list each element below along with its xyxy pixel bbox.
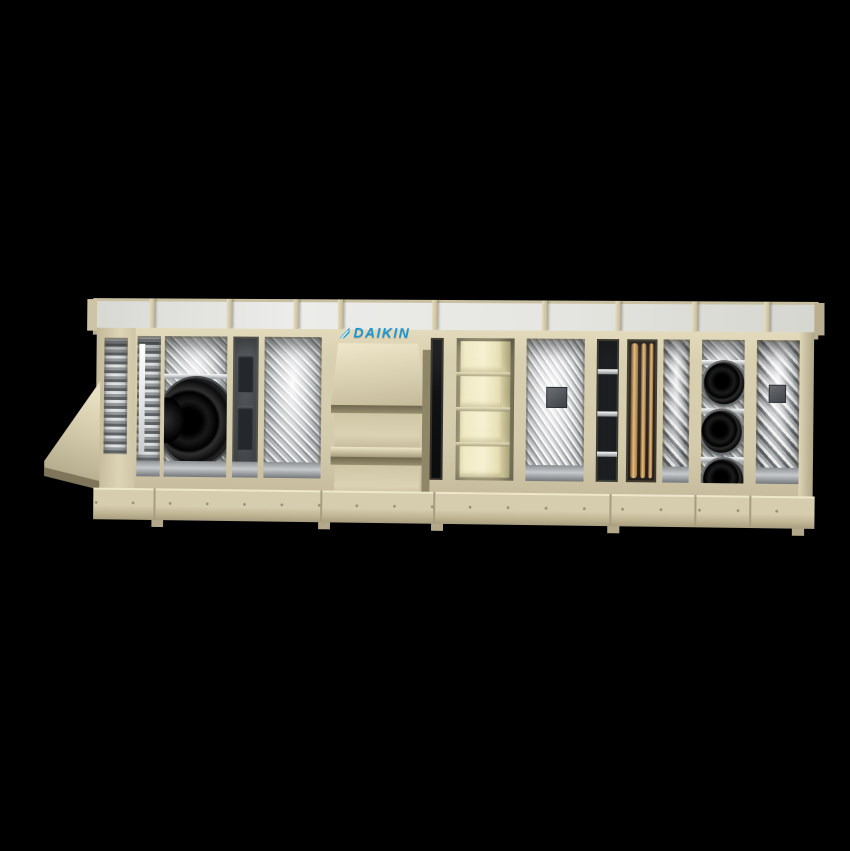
junction-box-icon	[769, 385, 787, 403]
bay-floor	[525, 465, 583, 482]
base-seam	[153, 488, 155, 520]
roof-rib	[149, 298, 154, 328]
slotted-access-panel-bay	[232, 337, 259, 478]
service-slit-bay	[429, 338, 443, 480]
right-end-mesh-bay	[756, 340, 800, 484]
copper-piping-bay	[626, 339, 658, 482]
cabinet-wall	[95, 328, 814, 497]
fan-wall-bay	[701, 340, 745, 484]
roof-rib	[615, 301, 620, 331]
air-handling-unit: DAIKIN	[95, 298, 815, 541]
left-end-damper-window	[103, 338, 127, 455]
mesh-screen-bay	[263, 337, 321, 479]
roof-edge-cap-right	[814, 303, 825, 335]
fan-wall-fan-icon	[704, 362, 745, 405]
bay-floor	[662, 466, 688, 482]
roof-rib	[293, 299, 298, 329]
bay-floor	[232, 462, 258, 478]
damper-louver-bay	[136, 336, 161, 477]
roof-edge-cap-left	[87, 299, 97, 331]
filter-block	[460, 341, 502, 372]
black-backdrop: { "page": { "background": "#000000" }, "…	[0, 0, 850, 851]
dark-slat-bay	[596, 339, 620, 482]
hood-tier	[331, 343, 425, 406]
filter-block	[459, 446, 501, 478]
panel-slot	[237, 406, 253, 450]
filter-block	[460, 411, 502, 442]
base-foot-bracket	[431, 524, 443, 531]
roof-rib	[764, 302, 769, 332]
bay-floor	[756, 467, 799, 484]
fan-wall-fan-icon	[701, 410, 742, 453]
bay-floor	[263, 462, 320, 479]
base-seam	[433, 492, 435, 524]
base-foot-bracket	[607, 526, 619, 533]
roof-rib	[432, 300, 437, 330]
base-rivets	[93, 499, 814, 514]
supply-fan-bay	[164, 336, 228, 477]
coil-fin-bay	[525, 339, 585, 482]
base-seam	[609, 494, 611, 526]
left-end-panel	[95, 328, 135, 488]
roof-rib	[692, 301, 697, 331]
filter-bank-bay	[455, 338, 514, 481]
base-foot-bracket	[151, 520, 163, 527]
slat-bar	[598, 369, 618, 374]
copper-pipe-icon	[630, 343, 638, 478]
roof-rib	[542, 300, 547, 330]
slat-bar	[598, 411, 618, 416]
copper-pipe-icon	[640, 343, 646, 478]
copper-pipe-icon	[648, 343, 653, 478]
bay-floor	[164, 461, 227, 478]
mesh-bay	[662, 339, 690, 482]
panel-slot	[238, 354, 254, 392]
brand-logo-text: DAIKIN	[353, 324, 410, 340]
base-foot-bracket	[792, 529, 804, 536]
damper-actuator-bar	[138, 344, 145, 453]
roof-rib	[227, 299, 232, 329]
left-intake-hood	[43, 381, 100, 490]
junction-box-icon	[546, 387, 567, 408]
hood-side-return	[421, 350, 431, 514]
bay-floor	[136, 460, 160, 476]
base-seam	[694, 495, 696, 527]
fan-wall-fan-icon	[703, 459, 744, 484]
base-seam	[749, 496, 751, 528]
daikin-flag-icon	[338, 326, 351, 339]
filter-block	[460, 376, 502, 407]
brand-logo: DAIKIN	[338, 324, 411, 340]
base-seam	[320, 490, 322, 522]
slat-bar	[597, 452, 617, 457]
base-foot-bracket	[318, 522, 330, 529]
right-end-panel	[798, 332, 814, 496]
